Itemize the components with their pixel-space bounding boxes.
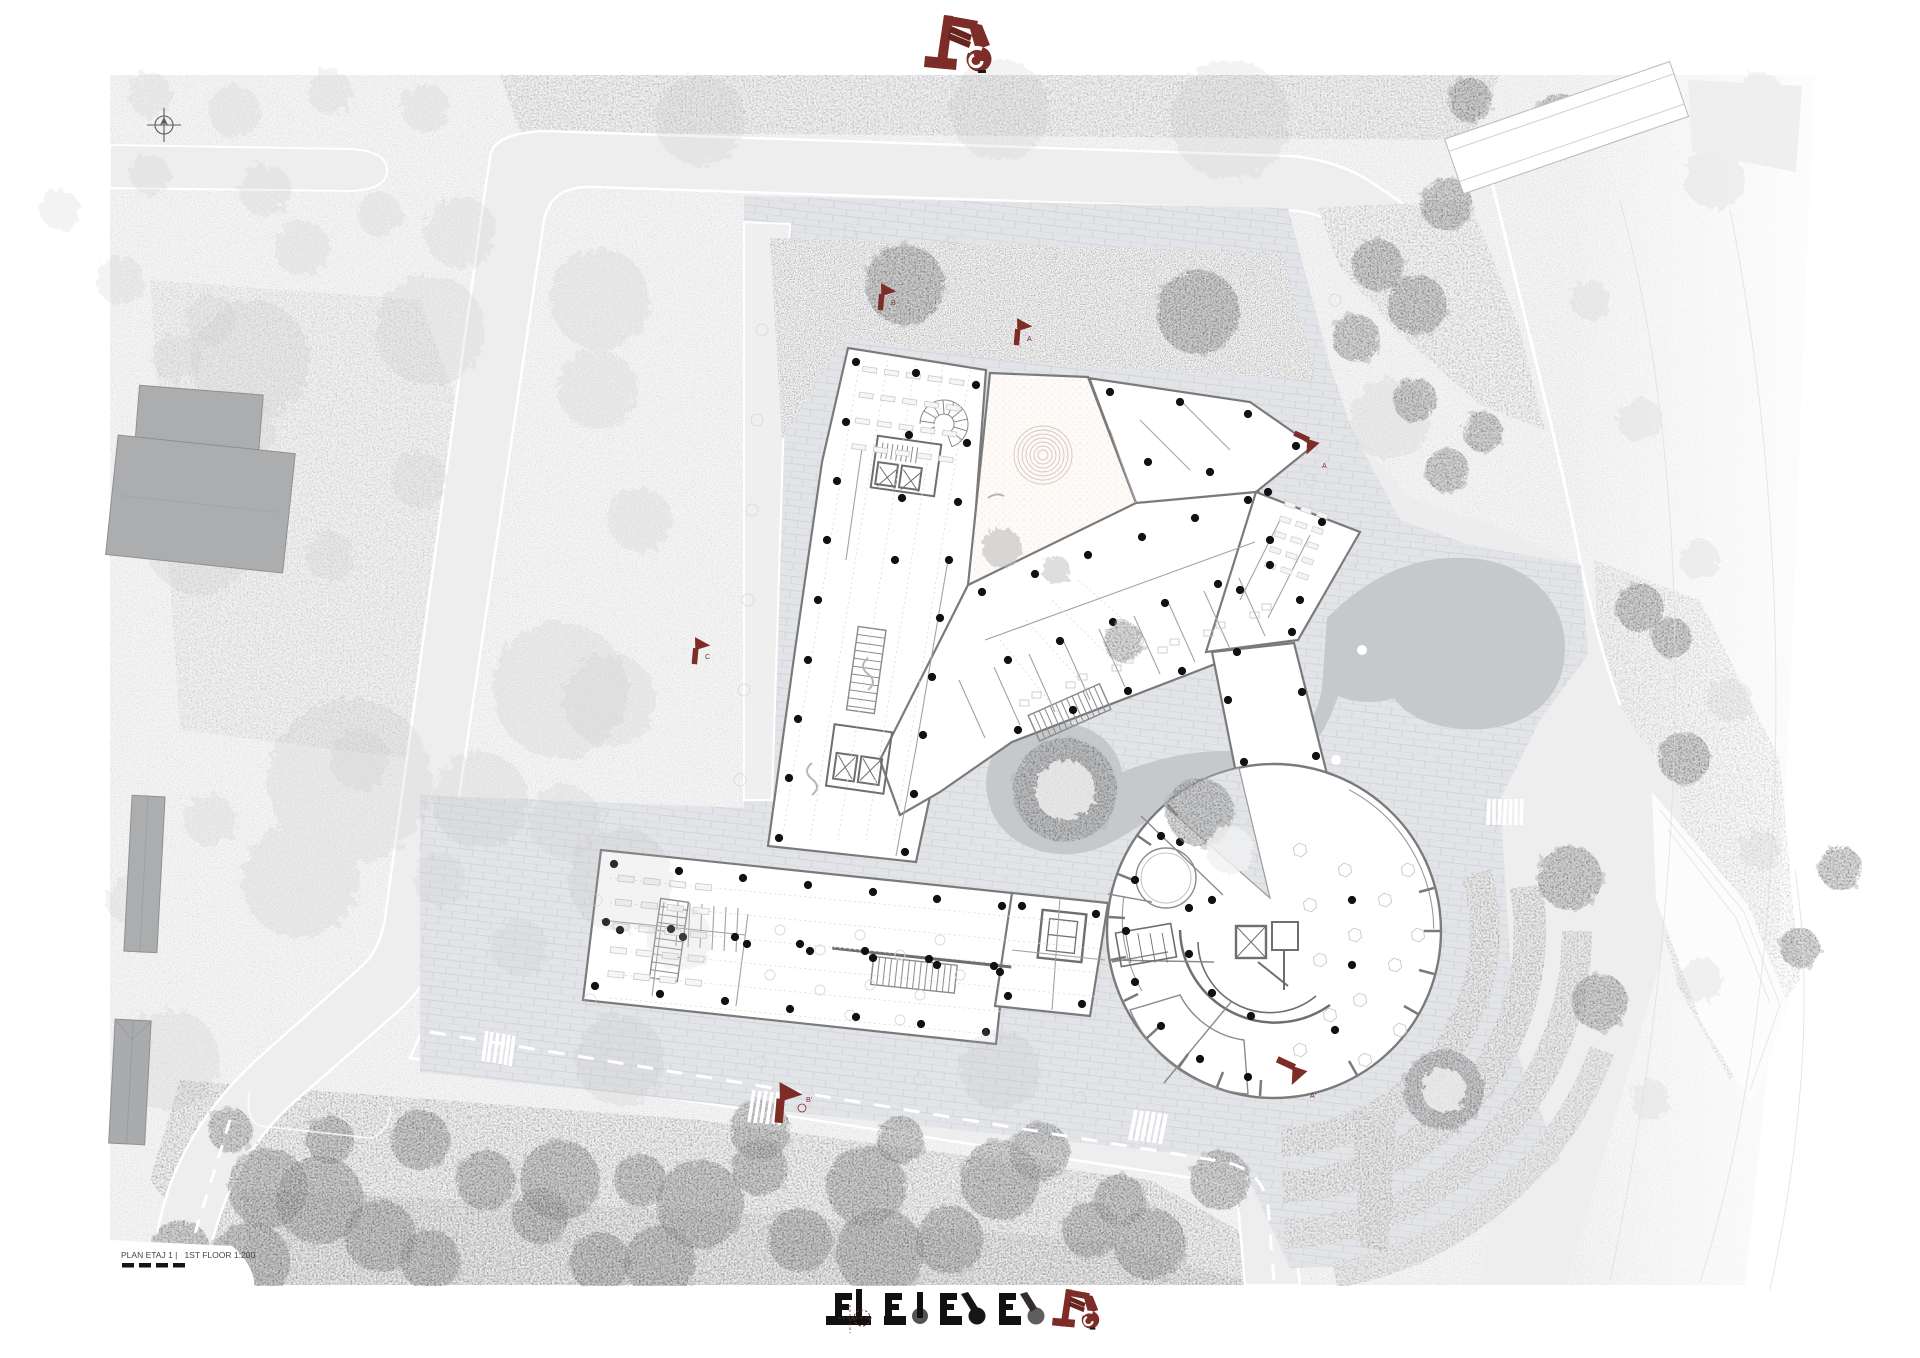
svg-text:B: B xyxy=(891,300,896,307)
svg-text:C: C xyxy=(705,654,710,661)
svg-text:B': B' xyxy=(806,1097,812,1104)
svg-text:A: A xyxy=(1322,463,1327,470)
svg-text:A': A' xyxy=(1310,1093,1316,1100)
svg-text:A: A xyxy=(1027,336,1032,343)
svg-text:PLAN ETAJ 1 | 1ST FLOOR 1:20: PLAN ETAJ 1 | 1ST FLOOR 1:200 xyxy=(121,1250,255,1260)
